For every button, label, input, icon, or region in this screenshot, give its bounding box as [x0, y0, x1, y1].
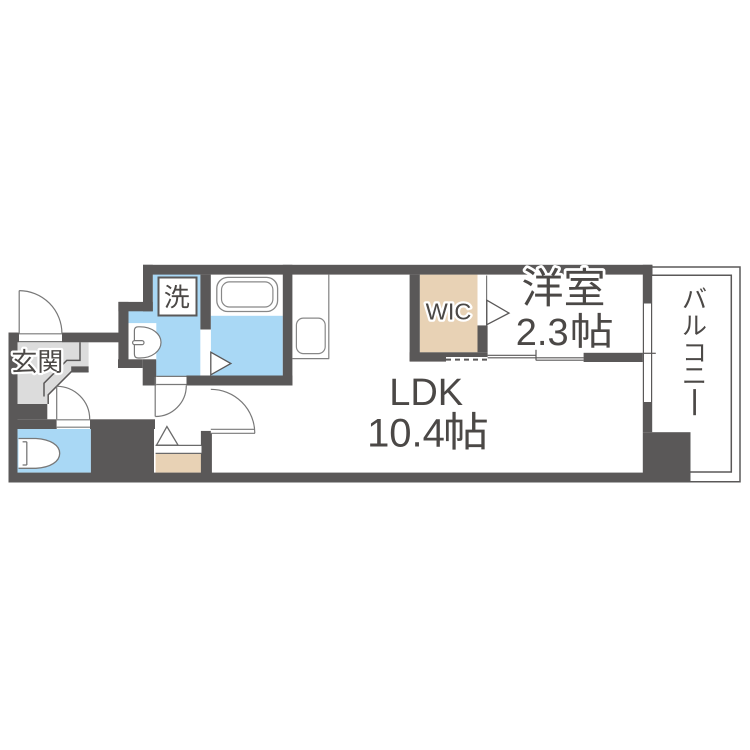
svg-text:LDK: LDK: [389, 372, 463, 414]
svg-text:10.4: 10.4: [367, 411, 445, 455]
svg-text:WIC: WIC: [426, 299, 472, 325]
svg-text:2.3: 2.3: [516, 312, 569, 354]
